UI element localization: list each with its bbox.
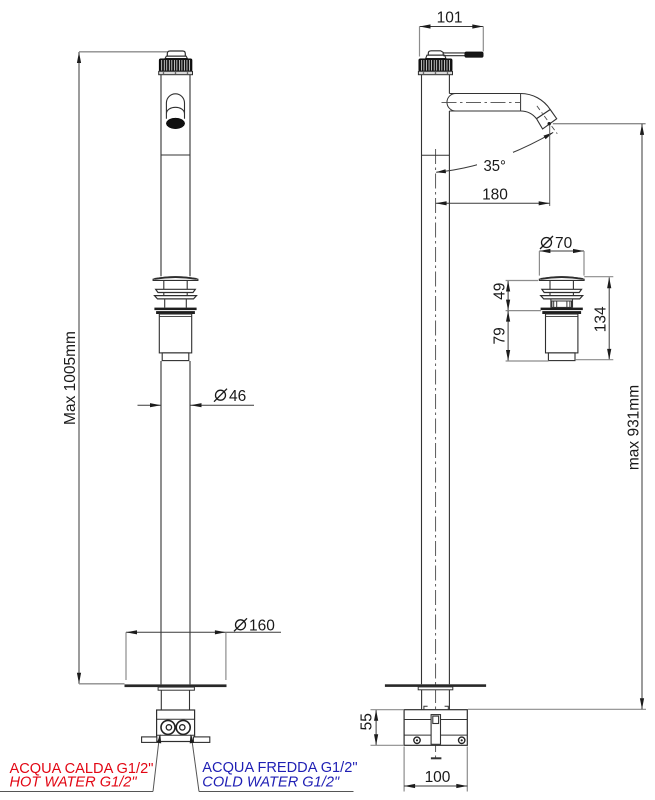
- svg-text:ACQUA FREDDA G1/2": ACQUA FREDDA G1/2": [202, 760, 357, 776]
- svg-text:101: 101: [437, 10, 463, 27]
- svg-text:79: 79: [492, 327, 509, 344]
- svg-text:180: 180: [482, 186, 508, 203]
- svg-text:COLD WATER G1/2": COLD WATER G1/2": [202, 775, 340, 791]
- svg-text:49: 49: [492, 283, 509, 300]
- svg-text:46: 46: [229, 388, 246, 405]
- svg-text:70: 70: [555, 235, 573, 252]
- svg-text:HOT WATER G1/2": HOT WATER G1/2": [10, 775, 138, 791]
- svg-text:max 931mm: max 931mm: [625, 385, 642, 470]
- svg-text:134: 134: [593, 306, 610, 332]
- svg-text:Max 1005mm: Max 1005mm: [62, 331, 79, 425]
- svg-text:100: 100: [425, 769, 451, 786]
- svg-text:160: 160: [249, 617, 275, 634]
- svg-text:35°: 35°: [484, 158, 507, 175]
- svg-text:55: 55: [359, 713, 376, 730]
